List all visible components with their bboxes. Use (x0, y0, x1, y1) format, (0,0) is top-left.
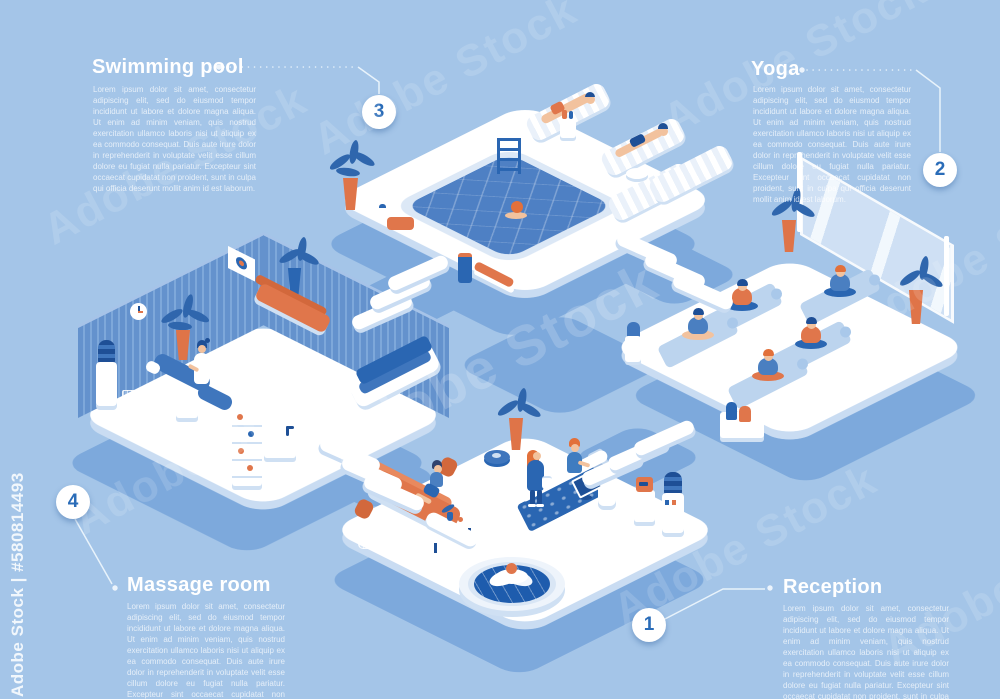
masseuse-head (198, 345, 206, 353)
trash-bin (458, 253, 472, 283)
rolled-towel-blue (726, 402, 737, 420)
watermark-id-text: Adobe Stock | #580814493 (8, 472, 28, 697)
orange-bottle (562, 110, 567, 119)
meditating-woman (822, 263, 858, 297)
section-title-massage-room: Massage room (127, 574, 271, 597)
section-body-swimming-pool: Lorem ipsum dolor sit amet, consectetur … (93, 84, 256, 194)
meditating-woman (793, 315, 829, 349)
rolled-towel-orange (739, 406, 751, 422)
section-body-yoga: Lorem ipsum dolor sit amet, consectetur … (753, 84, 911, 205)
swimmer-arms (505, 212, 527, 219)
swimmer-hair (511, 201, 523, 213)
side-stool (626, 168, 648, 179)
meditating-woman (680, 306, 716, 340)
man-hair (585, 92, 595, 97)
section-title-swimming-pool: Swimming pool (92, 56, 244, 79)
water-bottle (379, 204, 386, 223)
trash-basket (122, 390, 139, 409)
blue-bottle (569, 111, 573, 119)
reception-trash-basket (358, 530, 375, 549)
step-badge-4: 4 (56, 485, 90, 519)
handbag (542, 476, 552, 489)
section-title-reception: Reception (783, 576, 882, 599)
section-title-yoga: Yoga (751, 58, 800, 81)
section-body-massage-room: Lorem ipsum dolor sit amet, consectetur … (127, 601, 285, 699)
woman-hair (658, 123, 668, 129)
towel-stack (387, 217, 414, 230)
section-body-reception: Lorem ipsum dolor sit amet, consectetur … (783, 603, 949, 699)
step-badge-2: 2 (923, 153, 957, 187)
wall-clock-icon (130, 303, 147, 320)
table-vase (447, 512, 453, 521)
lotus-center (506, 563, 517, 574)
pool-ladder-icon (497, 138, 521, 174)
meditating-woman (750, 347, 786, 381)
table-pedestal (176, 392, 198, 418)
supply-shelf (232, 410, 262, 486)
step-badge-1: 1 (632, 608, 666, 642)
step-badge-3: 3 (362, 95, 396, 129)
spa-isometric-infographic: 3 Swimming pool Lorem ipsum dolor sit am… (0, 0, 1000, 699)
